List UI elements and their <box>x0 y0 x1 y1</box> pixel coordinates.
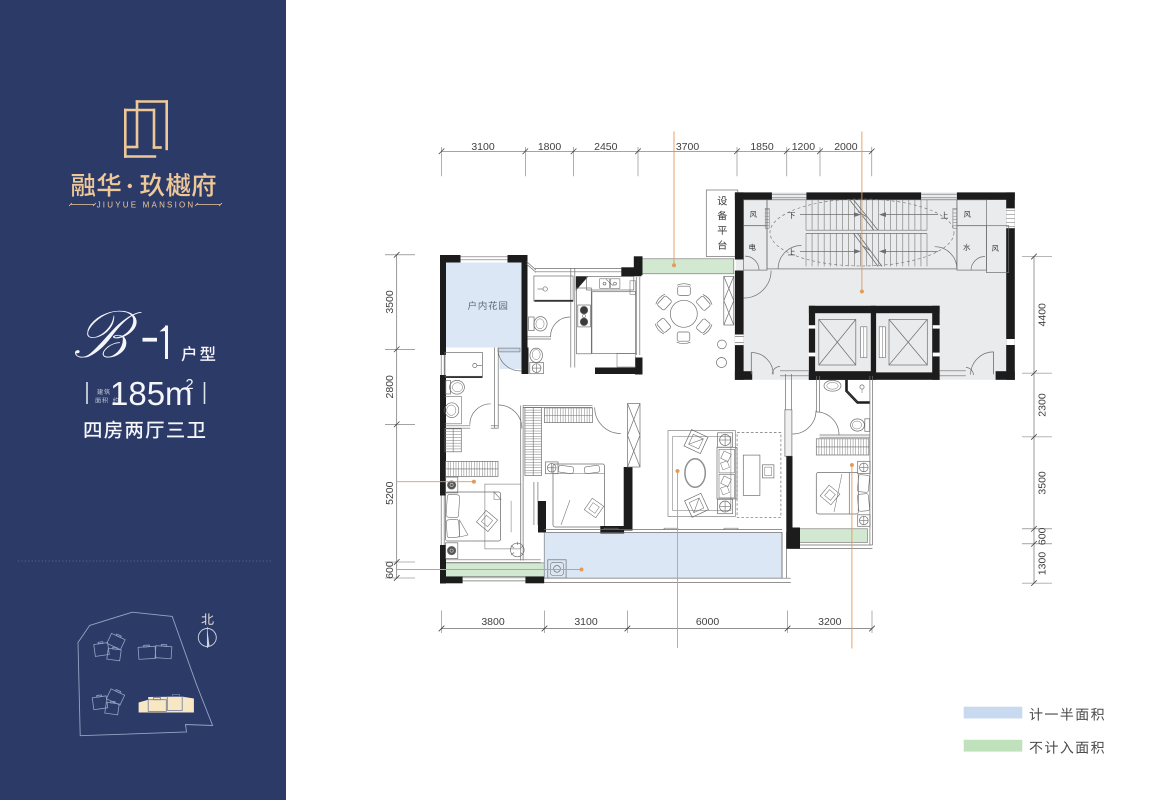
svg-text:3100: 3100 <box>471 141 495 153</box>
svg-text:4400: 4400 <box>1037 303 1049 327</box>
svg-text:185m: 185m <box>110 375 193 412</box>
svg-text:JIUYUE MANSION: JIUYUE MANSION <box>97 201 196 210</box>
svg-text:1200: 1200 <box>792 141 816 153</box>
svg-text:3700: 3700 <box>676 141 700 153</box>
svg-text:5200: 5200 <box>384 481 396 505</box>
svg-text:1800: 1800 <box>538 141 562 153</box>
svg-text:2450: 2450 <box>594 141 618 153</box>
svg-text:2000: 2000 <box>834 141 858 153</box>
svg-text:3200: 3200 <box>818 616 842 628</box>
svg-text:600: 600 <box>1037 527 1049 545</box>
svg-text:2300: 2300 <box>1037 393 1049 417</box>
svg-text:3800: 3800 <box>481 616 505 628</box>
svg-text:3100: 3100 <box>574 616 598 628</box>
svg-text:2800: 2800 <box>384 375 396 399</box>
svg-text:3500: 3500 <box>1037 471 1049 495</box>
svg-text:2: 2 <box>186 377 194 393</box>
svg-text:1850: 1850 <box>750 141 774 153</box>
svg-text:6000: 6000 <box>696 616 720 628</box>
svg-text:600: 600 <box>384 561 396 579</box>
svg-text:1300: 1300 <box>1037 552 1049 576</box>
svg-text:3500: 3500 <box>384 290 396 314</box>
